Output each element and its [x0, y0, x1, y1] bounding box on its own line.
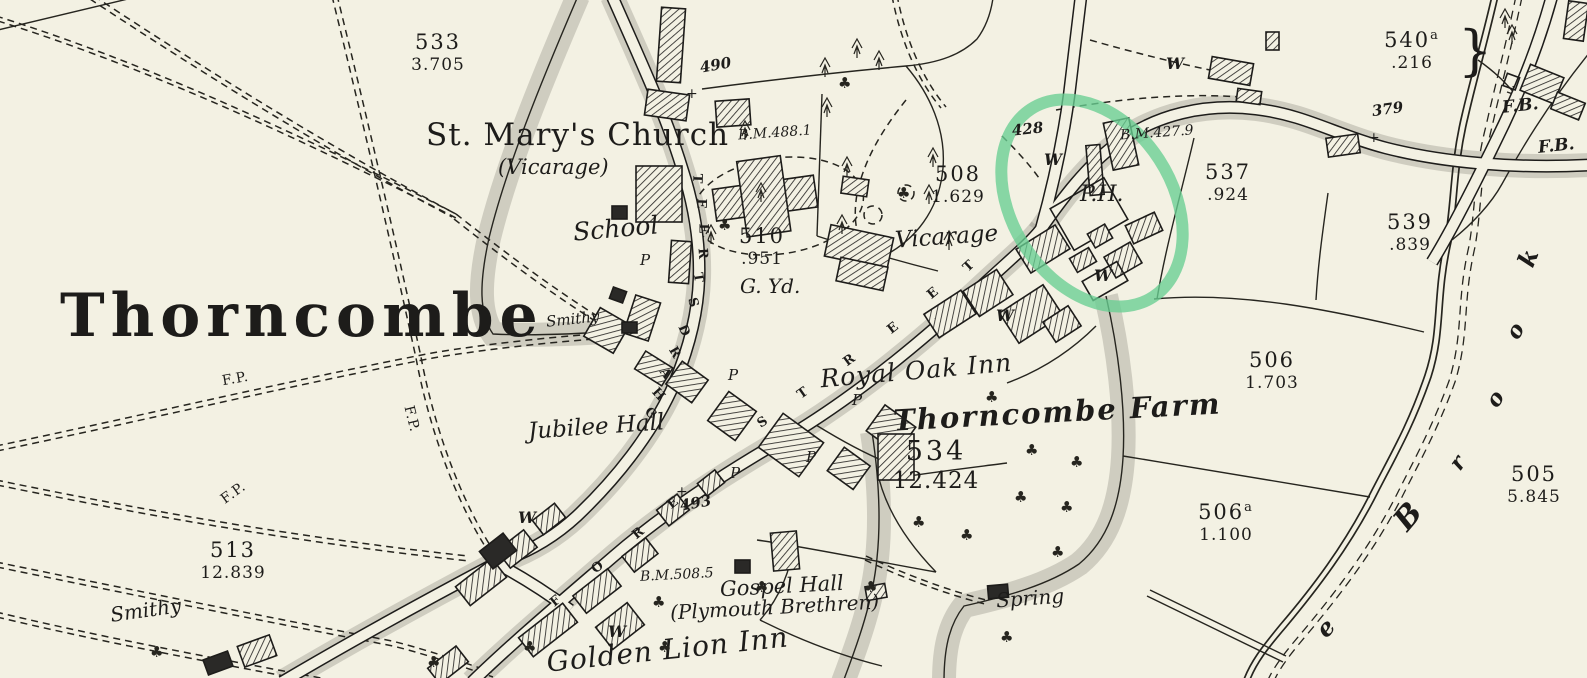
- well-marker-3: W: [996, 308, 1014, 324]
- footpath-label-1: F.P.: [221, 370, 250, 388]
- parcel-510: 510.951: [720, 224, 804, 270]
- street-letter: T: [690, 173, 703, 183]
- tree-symbol: ♣: [1025, 443, 1038, 458]
- parcel-539: 539.839: [1368, 210, 1452, 256]
- parcel-540a: 540a .216: [1366, 28, 1458, 74]
- tree-symbol: ♣: [864, 580, 877, 595]
- tree-symbol: ♣: [427, 655, 440, 670]
- tree-symbol: ♣: [718, 218, 731, 233]
- well-marker-5: W: [518, 510, 536, 526]
- street-letter: R: [696, 248, 710, 260]
- spot-height-428: 428: [1011, 120, 1044, 138]
- street-letter: O: [589, 559, 606, 576]
- parcel-534: 53412.424: [878, 436, 994, 496]
- street-letter: E: [694, 198, 707, 208]
- smithy-lower-label: Smithy: [109, 595, 182, 625]
- brook-letter: o: [1502, 319, 1528, 342]
- footpath-label-2: F.P.: [401, 404, 421, 434]
- church-note-label: (Vicarage): [498, 157, 609, 178]
- parcel-513: 51312.839: [186, 538, 280, 584]
- spring-label: Spring: [995, 586, 1064, 611]
- footbridge-label-1: F.B.: [1501, 96, 1539, 117]
- street-letter: T: [691, 272, 705, 283]
- tree-symbol: ♣: [658, 640, 671, 655]
- spot-height-490: 490: [699, 55, 732, 75]
- parcel-506: 5061.703: [1230, 348, 1314, 394]
- tree-symbol: ♣: [897, 186, 910, 201]
- street-letter: S: [755, 414, 770, 430]
- footpath-label-3: F.P.: [218, 479, 248, 506]
- brook-letter: o: [1482, 387, 1508, 411]
- street-letter: R: [666, 345, 683, 361]
- label-overlay: Thorncombe St. Mary's Church (Vicarage) …: [0, 0, 1587, 678]
- well-marker-4: W: [1166, 56, 1184, 72]
- cross-mark-2: +: [676, 485, 688, 499]
- spot-height-379: 379: [1371, 100, 1404, 119]
- parcel-540a-brace: }: [1458, 24, 1492, 78]
- parcel-506a: 506a 1.100: [1176, 500, 1276, 546]
- graveyard-label: G. Yd.: [740, 276, 800, 296]
- tree-symbol: ♣: [838, 76, 851, 91]
- street-letter: E: [885, 320, 901, 336]
- street-letter: S: [685, 296, 700, 308]
- parcel-508: 5081.629: [916, 162, 1000, 208]
- tree-symbol: ♣: [523, 640, 536, 655]
- tree-symbol: ♣: [960, 528, 973, 543]
- street-letter: E: [696, 224, 709, 234]
- brook-letter: e: [1312, 614, 1340, 642]
- parcel-537: 537.924: [1186, 160, 1270, 206]
- tree-symbol: ♣: [755, 580, 768, 595]
- cross-mark-3: +: [1368, 131, 1380, 145]
- smithy-upper-label: Smithy: [545, 309, 600, 330]
- benchmark-427: B.M.427.9: [1120, 123, 1194, 142]
- thorncombe-farm-label: Thorncombe Farm: [892, 389, 1222, 435]
- tree-symbol: ♣: [150, 645, 163, 660]
- tree-symbol: ♣: [912, 515, 925, 530]
- tree-symbol: ♣: [1051, 545, 1064, 560]
- pump-marker-2: P: [728, 368, 738, 383]
- well-marker-1: W: [1044, 152, 1062, 168]
- street-letter: H: [649, 386, 667, 404]
- well-marker-6: W: [608, 624, 626, 640]
- tree-symbol: ♣: [1060, 500, 1073, 515]
- pump-marker-3: P: [852, 393, 862, 408]
- os-map-sheet-thorncombe: Thorncombe St. Mary's Church (Vicarage) …: [0, 0, 1587, 678]
- tree-symbol: ♣: [1014, 490, 1027, 505]
- pump-marker-4: P: [806, 450, 816, 465]
- church-label: St. Mary's Church: [426, 120, 729, 151]
- cross-mark-1: +: [686, 87, 698, 101]
- parcel-505: 5055.845: [1492, 462, 1576, 508]
- brook-letter: B: [1389, 498, 1428, 537]
- pump-marker-5: P: [730, 466, 740, 481]
- vicarage-label: Vicarage: [894, 222, 999, 252]
- street-letter: T: [795, 385, 810, 401]
- gospel-hall-note-label: (Plymouth Brethren): [670, 592, 880, 623]
- footbridge-label-2: F.B.: [1537, 136, 1575, 157]
- benchmark-508: B.M.508.5: [640, 566, 714, 584]
- street-letter: D: [675, 323, 691, 339]
- street-letter: T: [961, 258, 977, 274]
- tree-symbol: ♣: [1070, 455, 1083, 470]
- street-letter: F: [548, 594, 563, 610]
- tree-symbol: ♣: [1000, 630, 1013, 645]
- street-letter: A: [657, 366, 673, 382]
- public-house-label: P.H.: [1080, 184, 1124, 206]
- benchmark-488: B.M.488.1: [738, 123, 812, 142]
- well-marker-2: W: [1094, 268, 1112, 284]
- parcel-533: 5333.705: [396, 30, 480, 76]
- brook-letter: r: [1445, 452, 1470, 474]
- street-letter: E: [925, 285, 941, 301]
- school-label: School: [572, 212, 659, 244]
- tree-symbol: ♣: [652, 595, 665, 610]
- village-title: Thorncombe: [60, 286, 544, 346]
- pump-marker-1: P: [640, 253, 650, 268]
- street-letter: R: [630, 525, 647, 542]
- tree-symbol: ♣: [985, 390, 998, 405]
- brook-letter: k: [1514, 246, 1542, 270]
